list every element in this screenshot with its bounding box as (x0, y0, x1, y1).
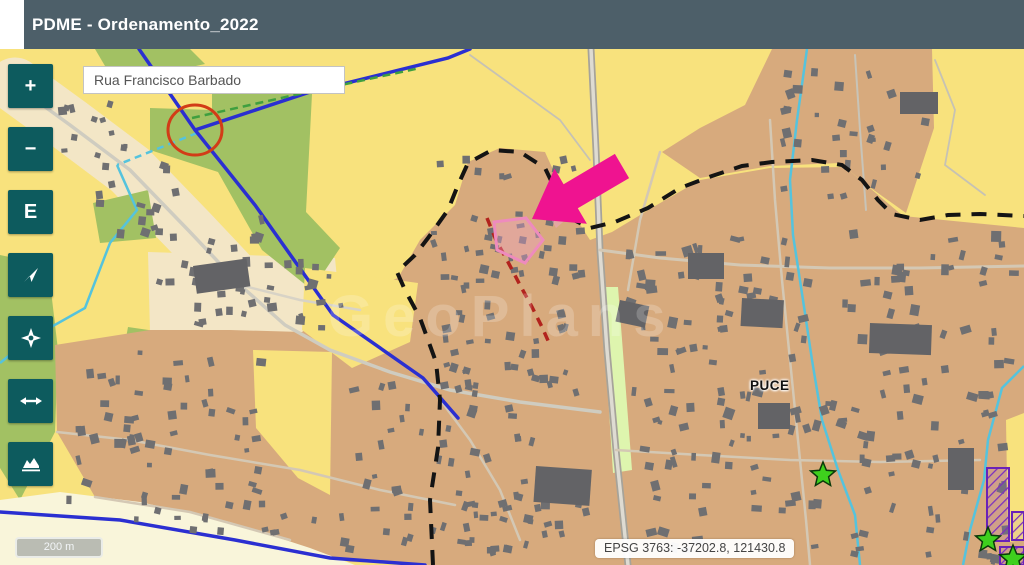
crosshair-icon (21, 328, 41, 348)
coordinates-readout: EPSG 3763: -37202.8, 121430.8 (595, 539, 794, 558)
geolocate-button[interactable] (8, 253, 53, 297)
app-header: PDME - Ordenamento_2022 (24, 0, 1024, 49)
page-title: PDME - Ordenamento_2022 (32, 0, 259, 49)
zoom-in-button[interactable]: + (8, 64, 53, 108)
search-input[interactable] (83, 66, 345, 94)
pan-center-button[interactable] (8, 316, 53, 360)
measure-button[interactable] (8, 379, 53, 423)
elevation-profile-button[interactable] (8, 442, 53, 486)
extent-letter-icon: E (24, 201, 37, 224)
zoom-out-button[interactable]: − (8, 127, 53, 171)
place-label-puce: PUCE (750, 378, 790, 393)
map-canvas[interactable] (0, 49, 1024, 565)
elevation-chart-icon (20, 455, 42, 473)
extent-button[interactable]: E (8, 190, 53, 234)
plus-icon: + (25, 75, 37, 98)
scale-bar: 200 m (15, 537, 103, 558)
measure-arrow-icon (20, 394, 42, 408)
header-notch (0, 0, 24, 49)
location-arrow-icon (21, 265, 41, 285)
minus-icon: − (25, 138, 37, 161)
